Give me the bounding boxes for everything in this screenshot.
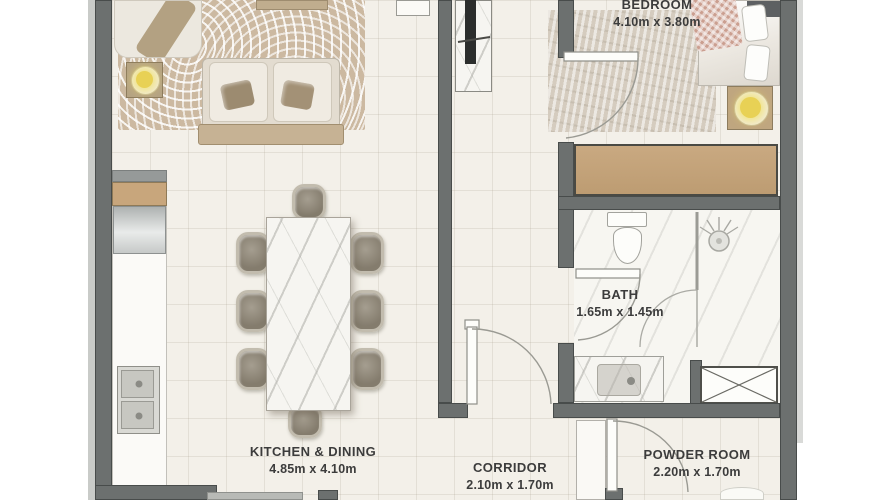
powder-door-hinge-block: [605, 488, 623, 500]
outer-wall-shadow-right: [797, 0, 803, 443]
room-name: CORRIDOR: [430, 461, 590, 475]
powder-toilet-partial: [720, 487, 764, 500]
floor-lamp-icon: [126, 62, 163, 98]
kitchen-cabinet: [112, 182, 167, 206]
floor-plan: BEDROOM 4.10m x 3.80m BATH 1.65m x 1.45m…: [0, 0, 890, 500]
dining-chair-icon: [292, 184, 326, 220]
dining-chair-icon: [350, 348, 384, 390]
wall-bath-bottom: [553, 403, 780, 418]
dining-table-icon: [266, 217, 351, 411]
room-dims: 1.65m x 1.45m: [550, 305, 690, 319]
room-name: BEDROOM: [577, 0, 737, 12]
dining-chair-icon: [350, 232, 384, 274]
wall-corridor-right-low: [558, 343, 574, 403]
wardrobe-icon: [574, 144, 778, 196]
room-label-kitchen: KITCHEN & DINING 4.85m x 4.10m: [233, 445, 393, 476]
appliance-bottom-partial: [207, 492, 303, 500]
double-sink-icon: [117, 366, 160, 434]
pillow-icon: [743, 44, 771, 82]
room-label-powder: POWDER ROOM 2.20m x 1.70m: [617, 448, 777, 479]
room-dims: 2.10m x 1.70m: [430, 478, 590, 492]
dining-chair-icon: [236, 290, 270, 332]
pillow-icon: [280, 80, 315, 111]
room-name: POWDER ROOM: [617, 448, 777, 462]
tv-icon: [465, 0, 476, 64]
wall-stub-kitchen-bottom: [318, 490, 338, 500]
room-label-bedroom: BEDROOM 4.10m x 3.80m: [577, 0, 737, 29]
room-label-bath: BATH 1.65m x 1.45m: [550, 288, 690, 319]
sofa-icon: [202, 58, 340, 146]
dining-chair-icon: [350, 290, 384, 332]
duct-shaft-icon: [700, 366, 778, 404]
wall-living-corridor: [438, 0, 452, 403]
room-dims: 4.85m x 4.10m: [233, 462, 393, 476]
wall-left-outer: [95, 0, 112, 500]
armchair-icon: [114, 0, 202, 58]
dining-chair-icon: [236, 348, 270, 390]
dining-chair-icon: [236, 232, 270, 274]
room-name: KITCHEN & DINING: [233, 445, 393, 459]
wall-bedroom-left: [558, 0, 574, 58]
counter-cap: [112, 170, 167, 182]
toilet-icon: [607, 212, 647, 227]
console-box: [396, 0, 430, 16]
wall-bottom-left: [95, 485, 217, 500]
room-dims: 2.20m x 1.70m: [617, 465, 777, 479]
room-name: BATH: [550, 288, 690, 302]
throw-blanket: [134, 0, 197, 58]
coffee-table-icon: [256, 0, 328, 10]
room-label-corridor: CORRIDOR 2.10m x 1.70m: [430, 461, 590, 492]
vanity-sink-icon: [574, 356, 664, 402]
room-dims: 4.10m x 3.80m: [577, 15, 737, 29]
nightstand-icon: [727, 86, 773, 130]
refrigerator-icon: [113, 206, 166, 254]
pillow-icon: [741, 4, 769, 43]
outer-wall-shadow-left: [88, 0, 95, 500]
wall-bath-top: [558, 196, 780, 210]
wall-right-outer: [780, 0, 797, 500]
wall-foot-left: [438, 403, 468, 418]
